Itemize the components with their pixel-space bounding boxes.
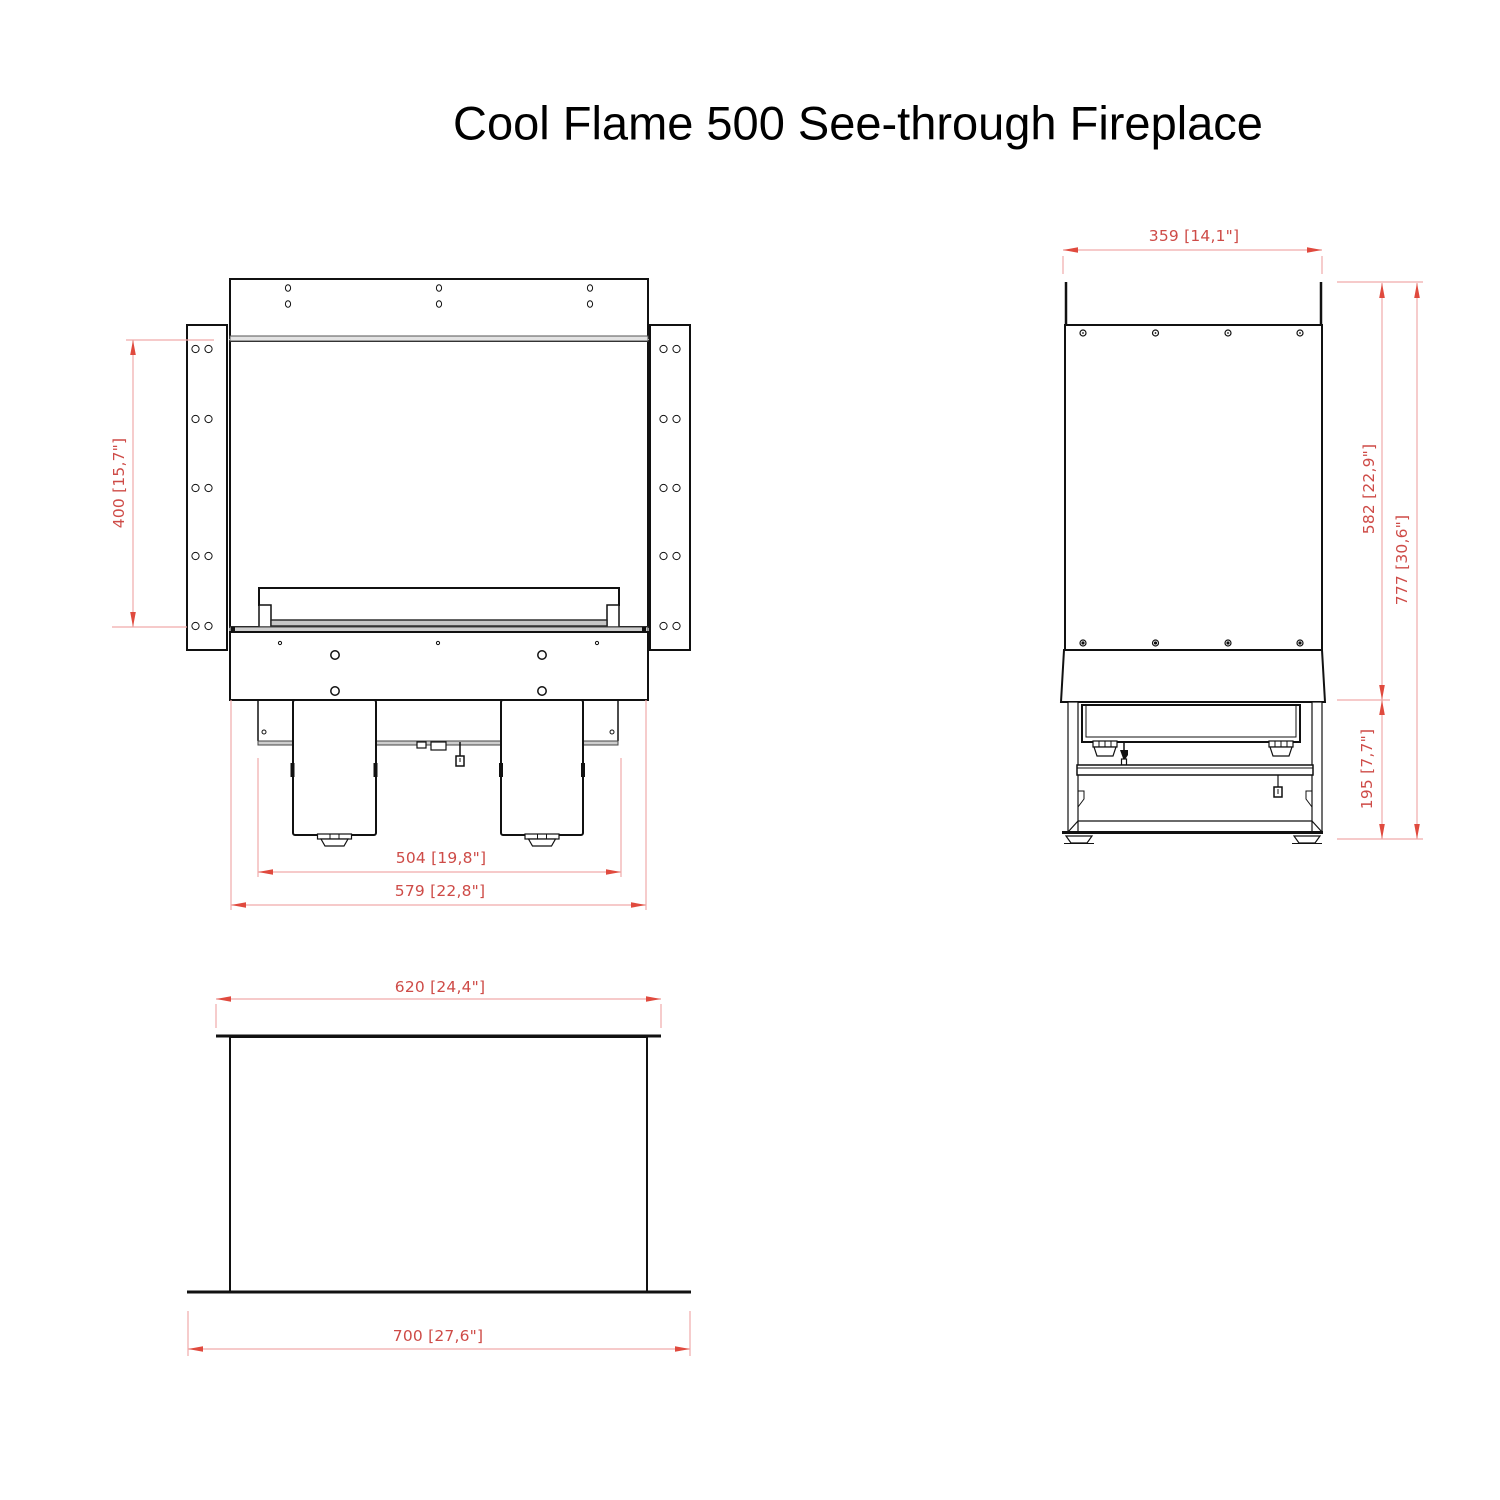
dim-front-legs-width: 504 [19,8"] [396,849,486,867]
plan-body-outline [230,1037,647,1292]
side-glass-edges [1066,282,1321,325]
plan-view [187,1036,691,1292]
front-right-leg [499,700,585,846]
gas-fittings [417,742,464,766]
side-view [1061,282,1325,844]
front-main-body [230,341,648,627]
dim-plan-outer-width: 700 [27,6"] [393,1327,483,1345]
dim-plan-opening-width: 620 [24,4"] [395,978,485,996]
dim-side-base-height: 195 [7,7"] [1358,729,1376,809]
front-left-leg [291,700,378,846]
front-top-edge-strip [230,336,648,341]
front-left-flange [187,325,227,650]
dim-front-body-width: 579 [22,8"] [395,882,485,900]
technical-drawing-page: Cool Flame 500 See-through Fireplace [0,0,1500,1500]
front-bottom-panel [230,632,648,700]
front-top-panel [230,279,648,338]
dim-front-window-height: 400 [15,7"] [110,438,128,528]
front-right-flange [650,325,690,650]
side-back-panel [1065,325,1322,650]
drawing-linework [0,0,1500,1500]
side-base-stand [1062,702,1323,844]
side-lower-body [1061,650,1325,702]
dim-side-depth: 359 [14,1"] [1149,227,1239,245]
front-view [187,279,690,846]
dim-side-total-height: 777 [30,6"] [1393,515,1411,605]
dim-side-body-height: 582 [22,9"] [1360,444,1378,534]
